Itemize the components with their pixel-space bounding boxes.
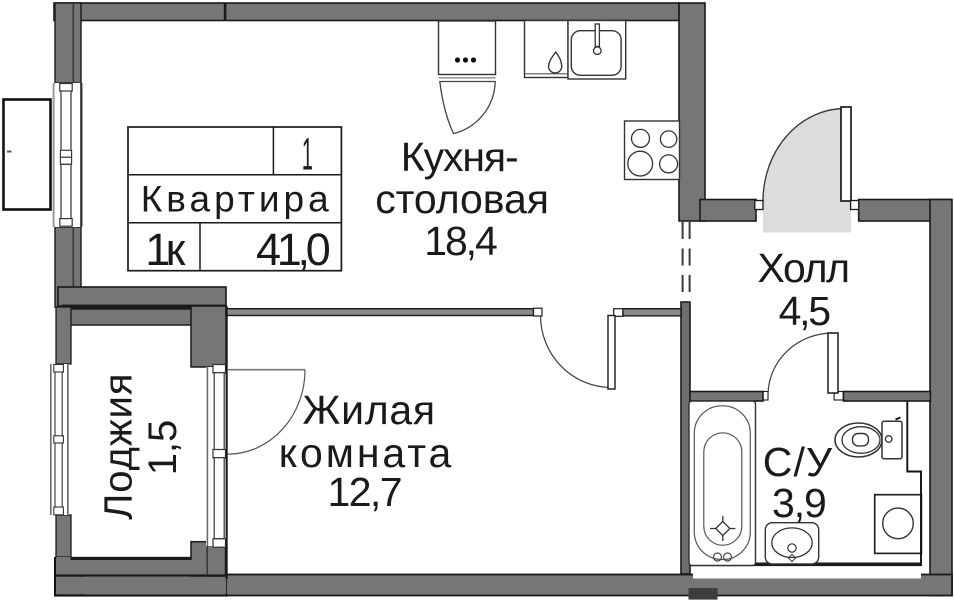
svg-text:С/У: С/У xyxy=(763,439,833,485)
svg-text:Кухня-: Кухня- xyxy=(401,134,519,180)
svg-text:1,5: 1,5 xyxy=(141,420,185,476)
svg-text:Жилая: Жилая xyxy=(303,387,436,433)
svg-text:18,4: 18,4 xyxy=(424,218,498,264)
svg-text:41,0: 41,0 xyxy=(256,224,331,275)
svg-text:1к: 1к xyxy=(145,224,185,275)
svg-text:Лоджия: Лоджия xyxy=(97,374,141,520)
svg-text:Холл: Холл xyxy=(758,245,851,291)
svg-text:столовая: столовая xyxy=(375,176,549,222)
svg-text:12,7: 12,7 xyxy=(328,469,403,515)
svg-text:1: 1 xyxy=(302,128,313,179)
svg-text:3,9: 3,9 xyxy=(772,480,827,526)
svg-text:4,5: 4,5 xyxy=(779,288,831,334)
